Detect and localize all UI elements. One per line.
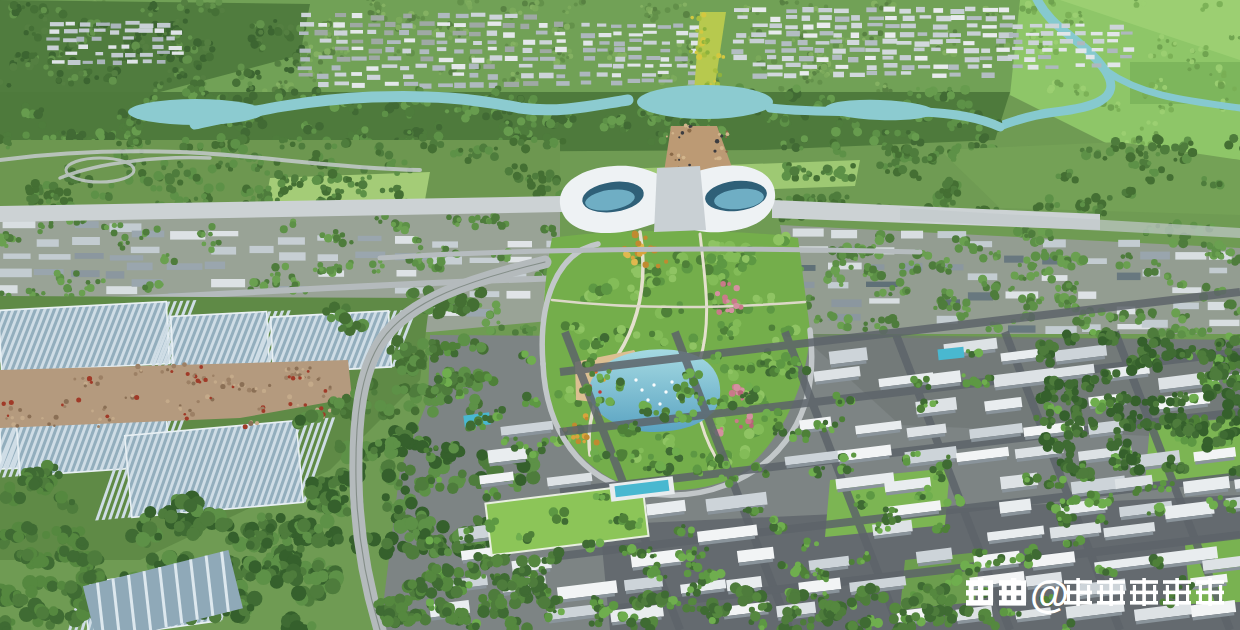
svg-text:@: @	[1030, 572, 1069, 616]
